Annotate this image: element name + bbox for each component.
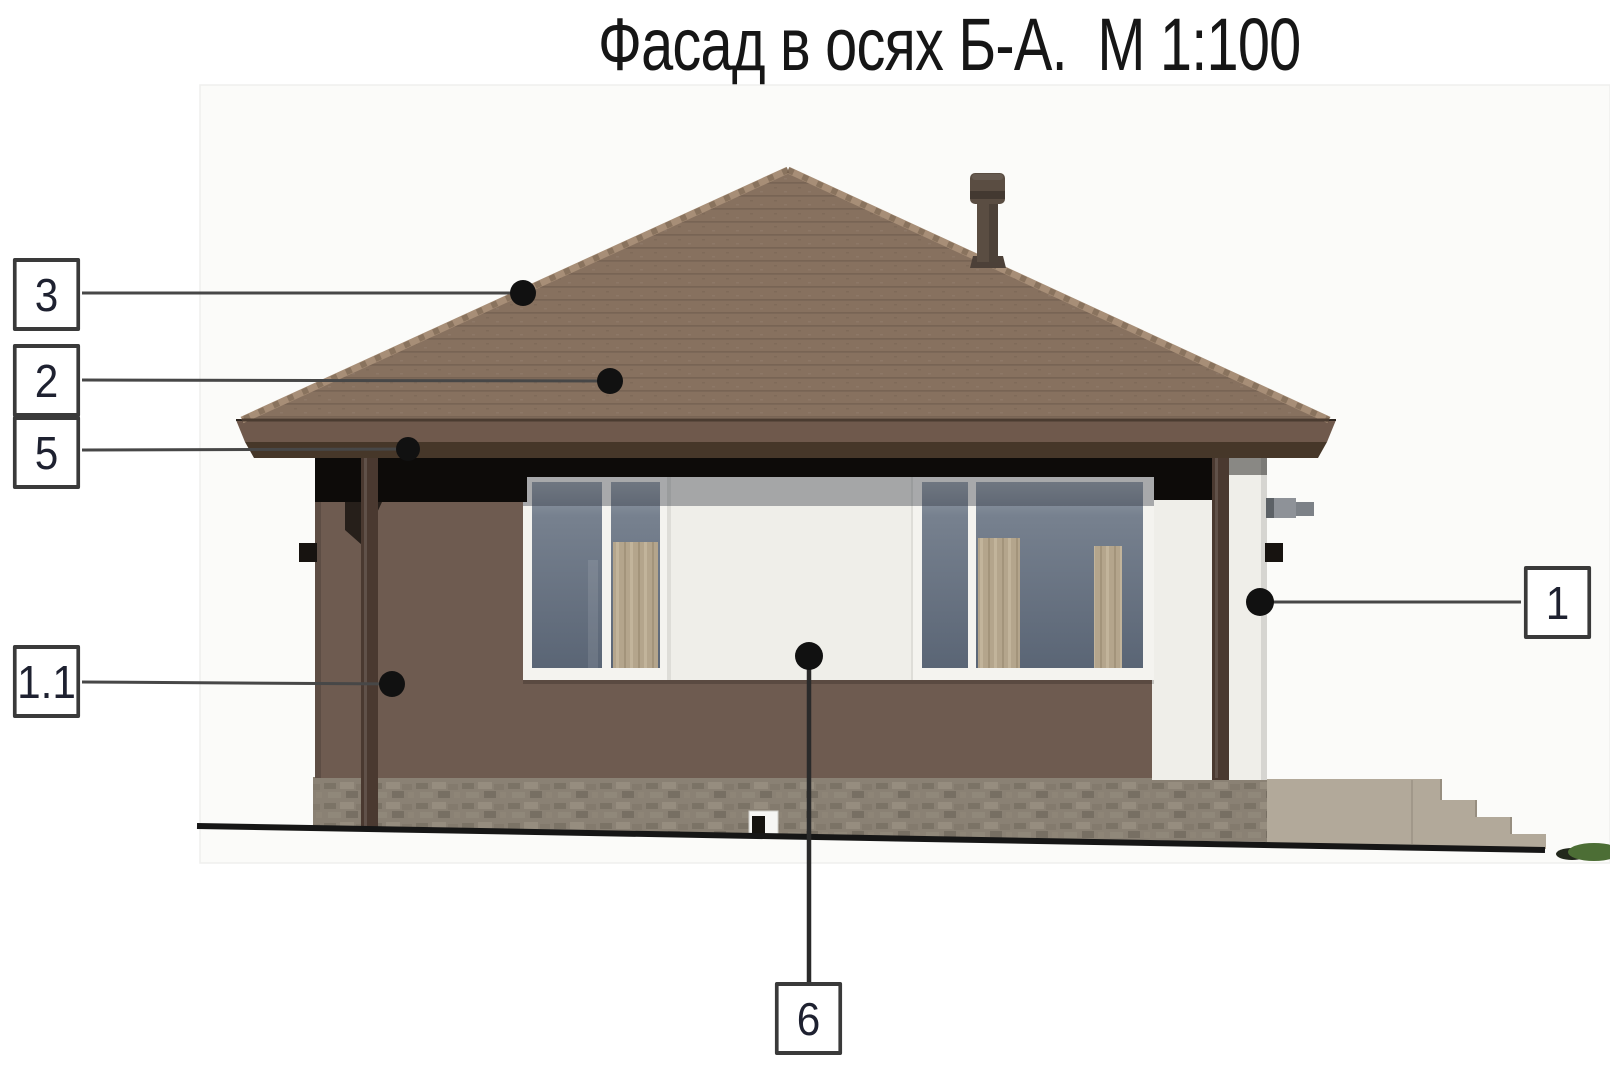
leader-dot-6 xyxy=(795,642,823,670)
leader-line-1-1 xyxy=(82,682,392,684)
leader-dot-1-1 xyxy=(379,671,405,697)
callout-label-1-1: 1.1 xyxy=(17,659,76,705)
wall-white-corner xyxy=(1152,458,1267,780)
window-sill-shadow xyxy=(523,680,1154,684)
window-right-glass-a xyxy=(922,482,968,668)
callout-box-6: 6 xyxy=(775,982,842,1055)
callout-label-5: 5 xyxy=(35,430,59,476)
callout-label-1: 1 xyxy=(1546,580,1570,626)
callout-label-3: 3 xyxy=(35,272,59,318)
window-right xyxy=(913,476,1154,680)
house-elevation-canvas xyxy=(0,0,1610,1080)
leader-dot-2 xyxy=(597,368,623,394)
recess-shadow xyxy=(523,476,1154,506)
wall-vent-right xyxy=(1265,543,1283,562)
callout-box-2: 2 xyxy=(13,344,80,417)
leader-line-5 xyxy=(82,449,408,450)
curtain-right-b xyxy=(1094,546,1122,668)
downpipe-right xyxy=(1212,442,1229,780)
callout-box-5: 5 xyxy=(13,416,80,489)
callout-box-1: 1 xyxy=(1524,566,1591,639)
curtain-right-a xyxy=(978,538,1020,668)
curtain-left xyxy=(613,542,658,668)
center-wall-panel xyxy=(667,476,915,680)
leader-line-2 xyxy=(82,380,610,381)
callout-box-1-1: 1.1 xyxy=(13,645,80,718)
window-band xyxy=(523,476,1154,684)
wall-vent-left xyxy=(299,543,317,562)
leader-dot-1 xyxy=(1246,588,1274,616)
window-left xyxy=(523,476,669,680)
callout-label-6: 6 xyxy=(797,996,821,1042)
callout-box-3: 3 xyxy=(13,258,80,331)
leader-dot-3 xyxy=(510,280,536,306)
facade-drawing-page: Фасад в осях Б-А. М 1:100 xyxy=(0,0,1610,1080)
callout-label-2: 2 xyxy=(35,358,59,404)
leader-dot-5 xyxy=(396,437,420,461)
